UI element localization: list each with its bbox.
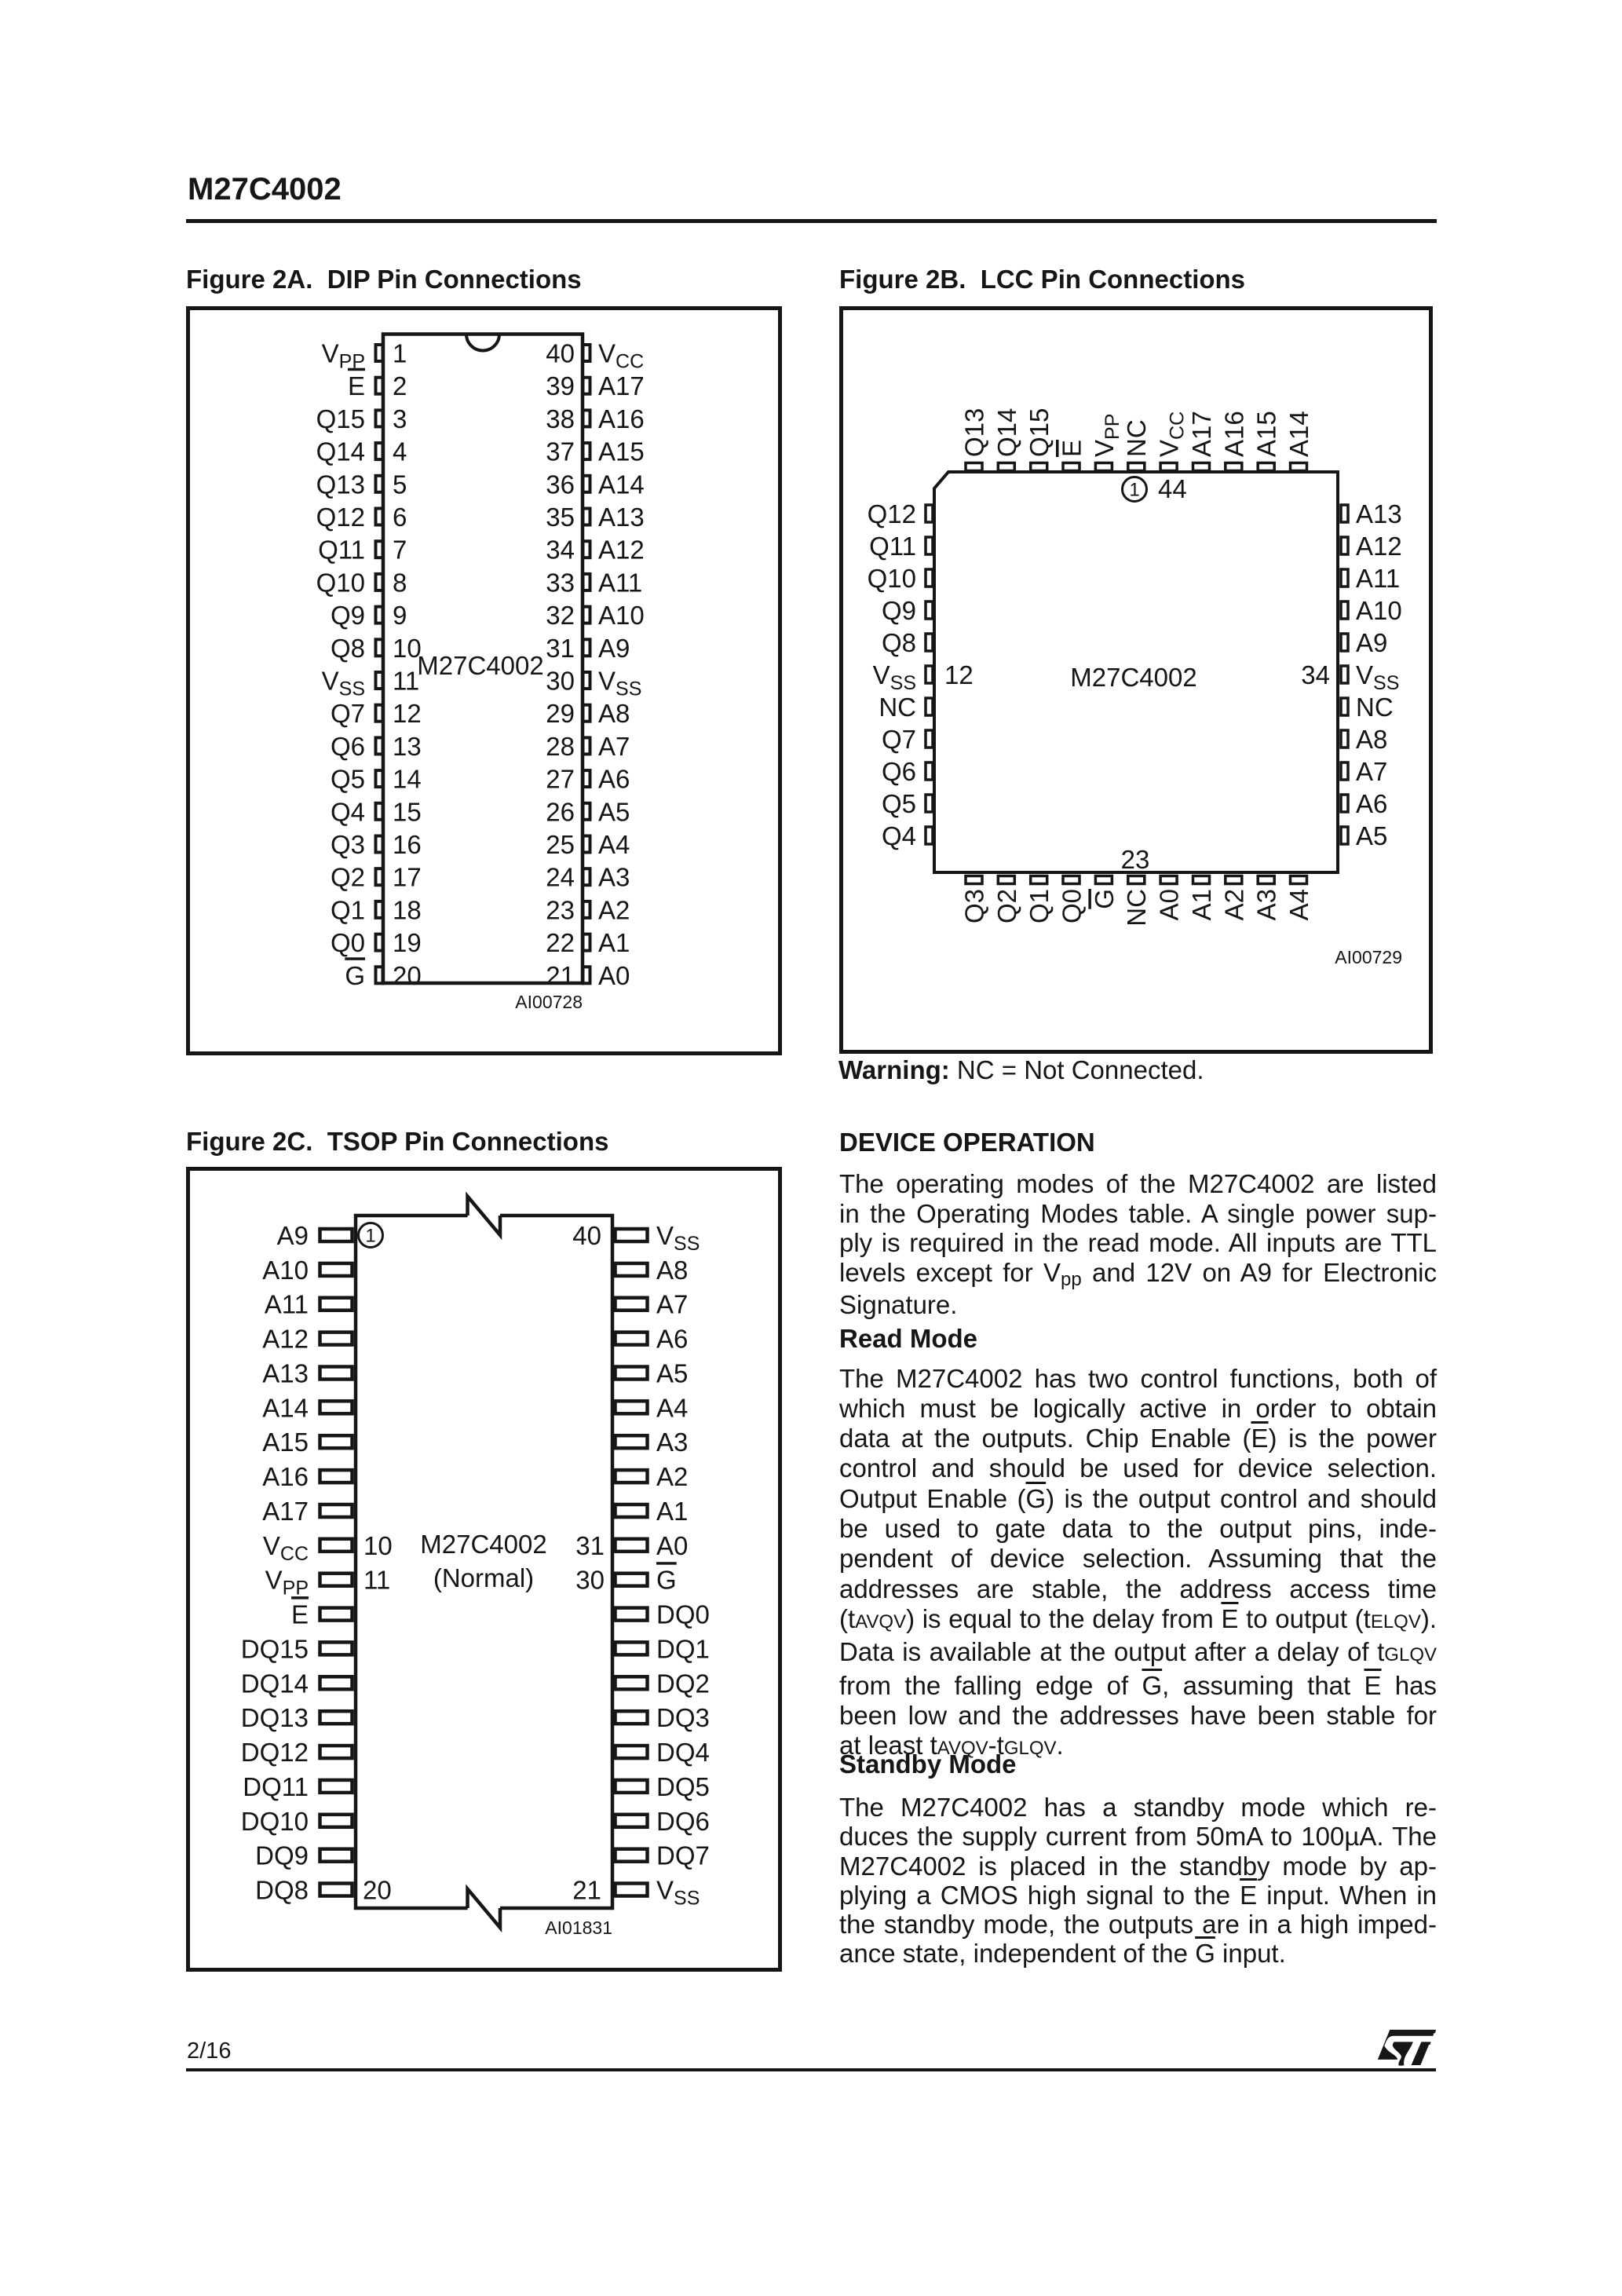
svg-text:Q15: Q15 [316, 404, 365, 433]
svg-text:NC: NC [1122, 419, 1151, 457]
svg-text:G: G [345, 961, 365, 990]
svg-text:35: 35 [546, 503, 575, 532]
svg-text:37: 37 [546, 437, 575, 466]
svg-text:5: 5 [393, 470, 407, 499]
svg-text:44: 44 [1158, 474, 1187, 503]
svg-text:A2: A2 [598, 895, 630, 924]
svg-text:E: E [291, 1600, 309, 1629]
svg-text:Q8: Q8 [331, 634, 365, 663]
svg-text:23: 23 [546, 895, 575, 924]
svg-text:1: 1 [365, 1226, 375, 1247]
svg-text:DQ3: DQ3 [656, 1703, 710, 1732]
svg-text:Q6: Q6 [331, 732, 365, 761]
svg-text:38: 38 [546, 404, 575, 433]
svg-text:Q3: Q3 [331, 830, 365, 859]
svg-text:AI00729: AI00729 [1335, 947, 1402, 967]
svg-text:VPP: VPP [322, 339, 365, 373]
svg-text:Q4: Q4 [331, 797, 365, 826]
svg-text:A11: A11 [598, 568, 642, 597]
svg-text:Q10: Q10 [316, 568, 365, 597]
svg-text:A4: A4 [598, 830, 630, 859]
svg-text:DQ10: DQ10 [241, 1807, 309, 1836]
svg-text:A3: A3 [598, 863, 630, 892]
svg-text:VCC: VCC [1155, 411, 1189, 457]
svg-text:Q0: Q0 [1058, 889, 1087, 923]
svg-text:A10: A10 [262, 1256, 309, 1285]
svg-text:A13: A13 [1356, 499, 1402, 528]
svg-text:25: 25 [546, 830, 575, 859]
svg-text:A10: A10 [598, 601, 645, 630]
svg-text:11: 11 [363, 1566, 390, 1595]
svg-text:A15: A15 [1252, 411, 1281, 457]
svg-text:A9: A9 [277, 1221, 309, 1250]
svg-text:1: 1 [1129, 480, 1139, 501]
svg-text:A15: A15 [598, 437, 645, 466]
svg-text:36: 36 [546, 470, 575, 499]
svg-text:A2: A2 [656, 1462, 688, 1491]
svg-text:9: 9 [393, 601, 407, 630]
svg-text:Q9: Q9 [882, 596, 916, 625]
svg-text:VCC: VCC [598, 339, 644, 373]
svg-text:21: 21 [572, 1876, 601, 1905]
svg-text:30: 30 [575, 1566, 605, 1595]
svg-text:A5: A5 [598, 797, 630, 826]
svg-text:A16: A16 [598, 404, 645, 433]
svg-text:Q14: Q14 [992, 408, 1021, 457]
svg-text:G: G [1090, 889, 1119, 909]
svg-text:Q10: Q10 [868, 564, 916, 593]
svg-text:7: 7 [393, 536, 407, 565]
svg-text:A12: A12 [598, 536, 645, 565]
svg-text:12: 12 [393, 699, 422, 728]
svg-text:A6: A6 [656, 1325, 688, 1354]
svg-text:A6: A6 [598, 765, 630, 794]
svg-text:Q0: Q0 [331, 928, 365, 957]
svg-text:A2: A2 [1219, 889, 1248, 920]
svg-text:A0: A0 [656, 1531, 688, 1560]
svg-text:AI00728: AI00728 [515, 992, 583, 1012]
svg-text:DQ7: DQ7 [656, 1841, 710, 1870]
svg-text:A3: A3 [656, 1428, 688, 1457]
svg-text:20: 20 [393, 961, 422, 990]
svg-text:17: 17 [393, 863, 422, 892]
svg-text:A16: A16 [1219, 411, 1248, 457]
svg-text:Q12: Q12 [868, 499, 916, 528]
svg-text:A9: A9 [598, 634, 630, 663]
svg-text:Q7: Q7 [331, 699, 365, 728]
svg-text:A13: A13 [598, 503, 645, 532]
svg-text:VSS: VSS [322, 667, 365, 700]
svg-text:A7: A7 [656, 1290, 688, 1319]
svg-text:Q13: Q13 [316, 470, 365, 499]
svg-text:DQ12: DQ12 [241, 1738, 309, 1767]
svg-text:Q14: Q14 [316, 437, 365, 466]
svg-text:VSS: VSS [1356, 660, 1399, 694]
svg-text:DQ13: DQ13 [241, 1703, 309, 1732]
svg-text:A5: A5 [656, 1359, 688, 1388]
svg-text:1: 1 [393, 339, 407, 368]
svg-text:A9: A9 [1356, 628, 1387, 657]
svg-text:A8: A8 [656, 1256, 688, 1285]
svg-text:A7: A7 [598, 732, 630, 761]
svg-text:A1: A1 [656, 1497, 688, 1526]
svg-text:22: 22 [546, 928, 575, 957]
svg-text:A12: A12 [262, 1325, 309, 1354]
svg-text:19: 19 [393, 928, 422, 957]
svg-text:G: G [656, 1566, 677, 1595]
svg-text:A17: A17 [598, 371, 645, 400]
svg-text:16: 16 [393, 830, 422, 859]
svg-text:DQ15: DQ15 [241, 1634, 309, 1663]
svg-text:11: 11 [393, 667, 419, 696]
svg-text:Q5: Q5 [331, 765, 365, 794]
svg-text:A17: A17 [1187, 411, 1216, 457]
svg-text:Q1: Q1 [1025, 889, 1054, 923]
svg-text:A7: A7 [1356, 757, 1387, 786]
svg-text:NC: NC [1122, 889, 1151, 927]
svg-text:A8: A8 [1356, 725, 1387, 754]
svg-text:31: 31 [575, 1531, 605, 1560]
svg-text:4: 4 [393, 437, 407, 466]
svg-text:A16: A16 [262, 1462, 309, 1491]
svg-text:Q15: Q15 [1025, 408, 1054, 457]
svg-text:(Normal): (Normal) [433, 1563, 534, 1592]
svg-text:39: 39 [546, 371, 575, 400]
svg-text:VSS: VSS [873, 660, 916, 694]
svg-text:12: 12 [944, 660, 974, 689]
svg-text:A5: A5 [1356, 821, 1387, 850]
svg-text:Q11: Q11 [318, 536, 365, 565]
svg-text:18: 18 [393, 895, 422, 924]
svg-text:M27C4002: M27C4002 [420, 1530, 546, 1559]
svg-text:24: 24 [546, 863, 575, 892]
svg-text:31: 31 [546, 634, 575, 663]
svg-text:Q5: Q5 [882, 789, 916, 818]
svg-text:30: 30 [546, 667, 575, 696]
svg-text:Q3: Q3 [960, 889, 989, 923]
svg-text:Q13: Q13 [960, 408, 989, 457]
svg-text:8: 8 [393, 568, 407, 597]
svg-text:Q4: Q4 [882, 821, 916, 850]
svg-text:A13: A13 [262, 1359, 309, 1388]
svg-text:Q2: Q2 [992, 889, 1021, 923]
svg-text:33: 33 [546, 568, 575, 597]
svg-text:DQ4: DQ4 [656, 1738, 710, 1767]
svg-text:A11: A11 [1356, 564, 1400, 593]
svg-text:DQ1: DQ1 [656, 1634, 710, 1663]
svg-text:VSS: VSS [656, 1876, 700, 1910]
svg-text:DQ14: DQ14 [241, 1669, 309, 1698]
svg-text:DQ0: DQ0 [656, 1600, 710, 1629]
svg-text:Q2: Q2 [331, 863, 365, 892]
svg-text:A6: A6 [1356, 789, 1387, 818]
svg-text:A8: A8 [598, 699, 630, 728]
svg-text:DQ9: DQ9 [255, 1841, 309, 1870]
svg-text:Q11: Q11 [869, 532, 916, 561]
svg-text:M27C4002: M27C4002 [1070, 663, 1196, 692]
svg-text:Q9: Q9 [331, 601, 365, 630]
svg-text:VCC: VCC [263, 1531, 309, 1565]
svg-text:E: E [1058, 440, 1087, 457]
svg-text:27: 27 [546, 765, 575, 794]
svg-text:DQ6: DQ6 [656, 1807, 710, 1836]
svg-text:26: 26 [546, 797, 575, 826]
svg-text:A11: A11 [265, 1290, 309, 1319]
svg-text:A0: A0 [598, 961, 630, 990]
svg-text:20: 20 [363, 1876, 392, 1905]
svg-text:Q12: Q12 [316, 503, 365, 532]
svg-text:A1: A1 [598, 928, 630, 957]
svg-text:2: 2 [393, 371, 407, 400]
svg-text:Q8: Q8 [882, 628, 916, 657]
svg-text:NC: NC [879, 693, 916, 722]
svg-text:A3: A3 [1252, 889, 1281, 920]
svg-text:Q1: Q1 [331, 895, 365, 924]
svg-text:DQ2: DQ2 [656, 1669, 710, 1698]
svg-text:VPP: VPP [265, 1566, 309, 1600]
svg-text:34: 34 [1301, 660, 1330, 689]
svg-text:DQ11: DQ11 [243, 1772, 309, 1801]
svg-text:3: 3 [393, 404, 407, 433]
svg-text:A15: A15 [262, 1428, 309, 1457]
svg-text:40: 40 [546, 339, 575, 368]
svg-text:40: 40 [572, 1221, 601, 1250]
svg-text:6: 6 [393, 503, 407, 532]
svg-text:32: 32 [546, 601, 575, 630]
svg-text:A0: A0 [1155, 889, 1184, 920]
svg-text:A4: A4 [1284, 889, 1313, 920]
svg-text:13: 13 [393, 732, 422, 761]
svg-text:M27C4002: M27C4002 [417, 651, 543, 680]
svg-text:A12: A12 [1356, 532, 1402, 561]
svg-text:10: 10 [363, 1531, 393, 1560]
svg-text:Q6: Q6 [882, 757, 916, 786]
svg-text:NC: NC [1356, 693, 1394, 722]
svg-text:A17: A17 [262, 1497, 309, 1526]
svg-text:DQ5: DQ5 [656, 1772, 710, 1801]
svg-text:A1: A1 [1187, 889, 1216, 920]
svg-text:AI01831: AI01831 [545, 1918, 612, 1938]
svg-text:VSS: VSS [656, 1221, 700, 1255]
svg-text:E: E [348, 371, 365, 400]
svg-text:28: 28 [546, 732, 575, 761]
svg-text:21: 21 [546, 961, 575, 990]
svg-text:VPP: VPP [1090, 414, 1123, 457]
svg-text:A14: A14 [262, 1393, 309, 1422]
svg-text:23: 23 [1121, 845, 1150, 874]
svg-text:VSS: VSS [598, 667, 641, 700]
svg-text:A14: A14 [598, 470, 645, 499]
svg-text:15: 15 [393, 797, 422, 826]
svg-text:14: 14 [393, 765, 422, 794]
svg-text:A14: A14 [1284, 411, 1313, 457]
svg-text:29: 29 [546, 699, 575, 728]
svg-text:A10: A10 [1356, 596, 1402, 625]
svg-text:34: 34 [546, 536, 575, 565]
svg-text:DQ8: DQ8 [255, 1876, 309, 1905]
svg-text:A4: A4 [656, 1393, 688, 1422]
svg-text:Q7: Q7 [882, 725, 916, 754]
